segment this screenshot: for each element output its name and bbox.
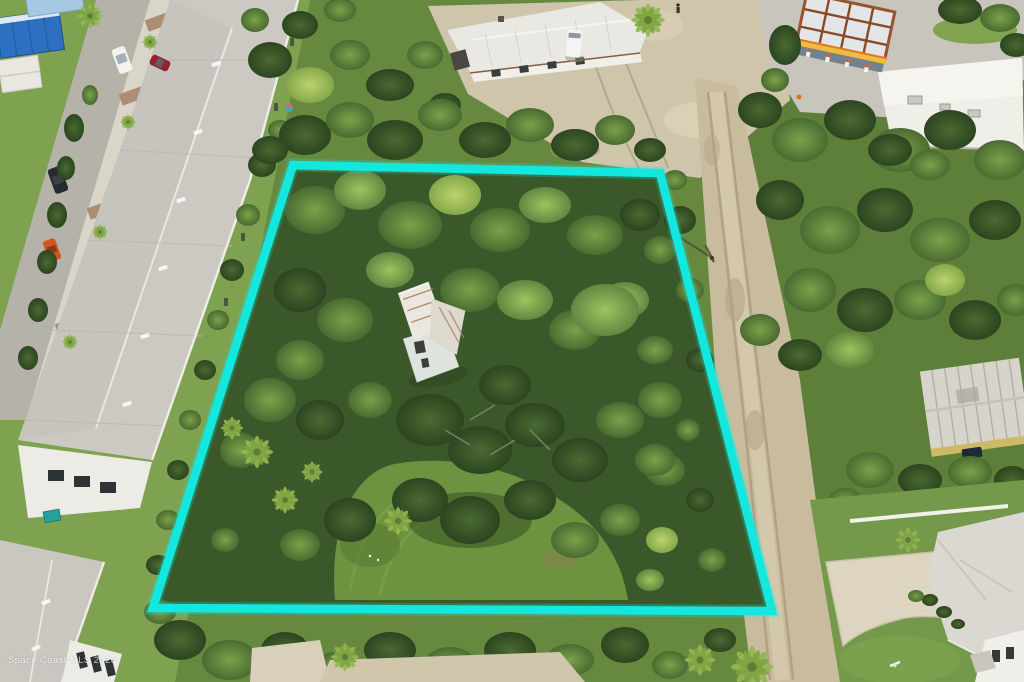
teal-dumpster [43,509,61,523]
palm-tree [895,527,920,552]
weathered-roof-house [920,358,1024,457]
aerial-photo-canvas [0,0,1024,682]
pedestrian [676,3,679,13]
traffic-cone [797,95,802,100]
aerial-photo: Space Coast MLS 2020 [0,0,1024,682]
palm-tree [631,3,665,37]
blue-commercial-building [0,10,64,59]
white-sheds [0,55,42,92]
